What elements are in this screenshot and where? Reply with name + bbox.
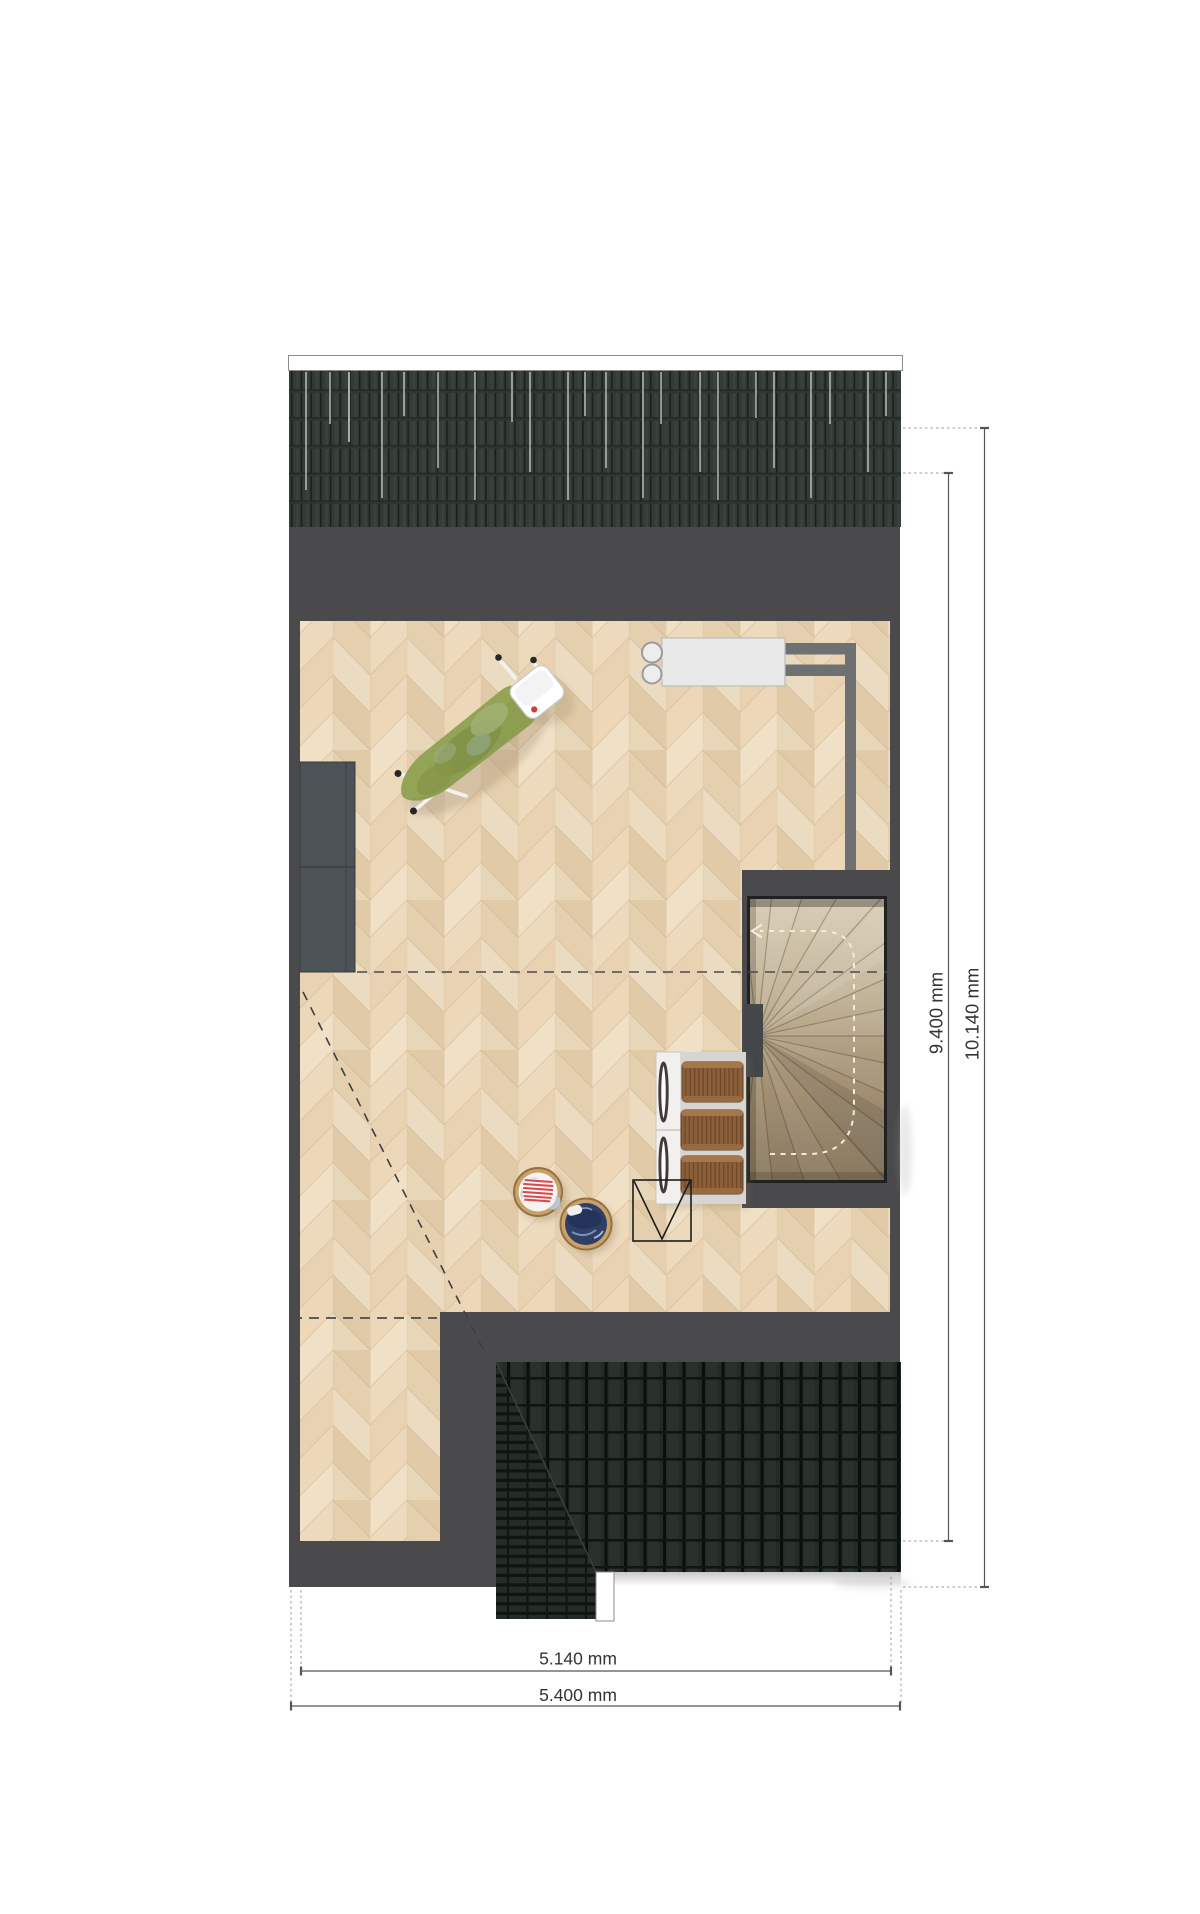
svg-text:5.400 mm: 5.400 mm <box>539 1685 617 1705</box>
svg-text:5.140 mm: 5.140 mm <box>539 1649 617 1669</box>
svg-text:9.400 mm: 9.400 mm <box>926 972 947 1054</box>
svg-text:10.140 mm: 10.140 mm <box>962 968 983 1061</box>
